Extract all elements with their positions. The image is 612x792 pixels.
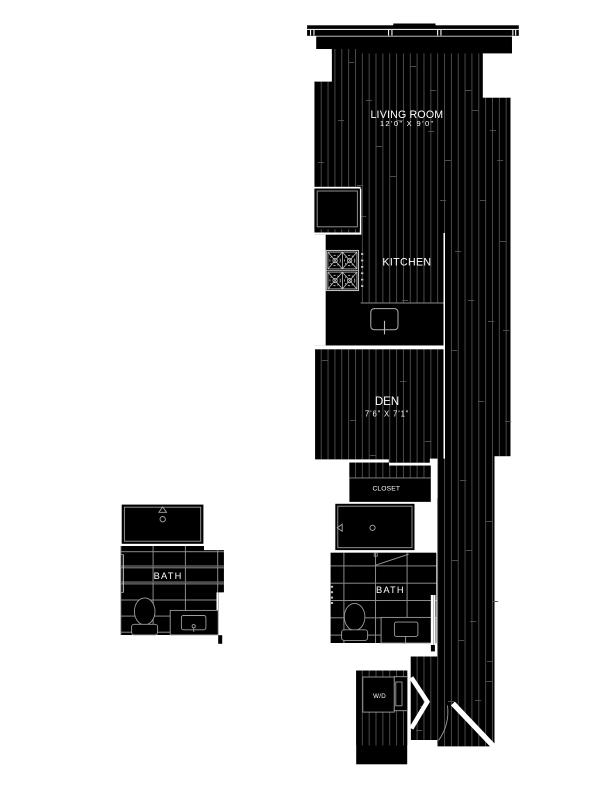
- svg-text:KITCHEN: KITCHEN: [382, 257, 431, 269]
- svg-text:BATH: BATH: [376, 585, 405, 595]
- svg-text:DEN: DEN: [375, 396, 399, 408]
- svg-text:W/D: W/D: [373, 693, 386, 700]
- svg-text:BATH: BATH: [154, 571, 183, 581]
- svg-text:12’0” X 9’0”: 12’0” X 9’0”: [380, 119, 434, 128]
- svg-text:CLOSET: CLOSET: [372, 486, 400, 493]
- svg-text:7’6” X 7’1”: 7’6” X 7’1”: [365, 409, 409, 418]
